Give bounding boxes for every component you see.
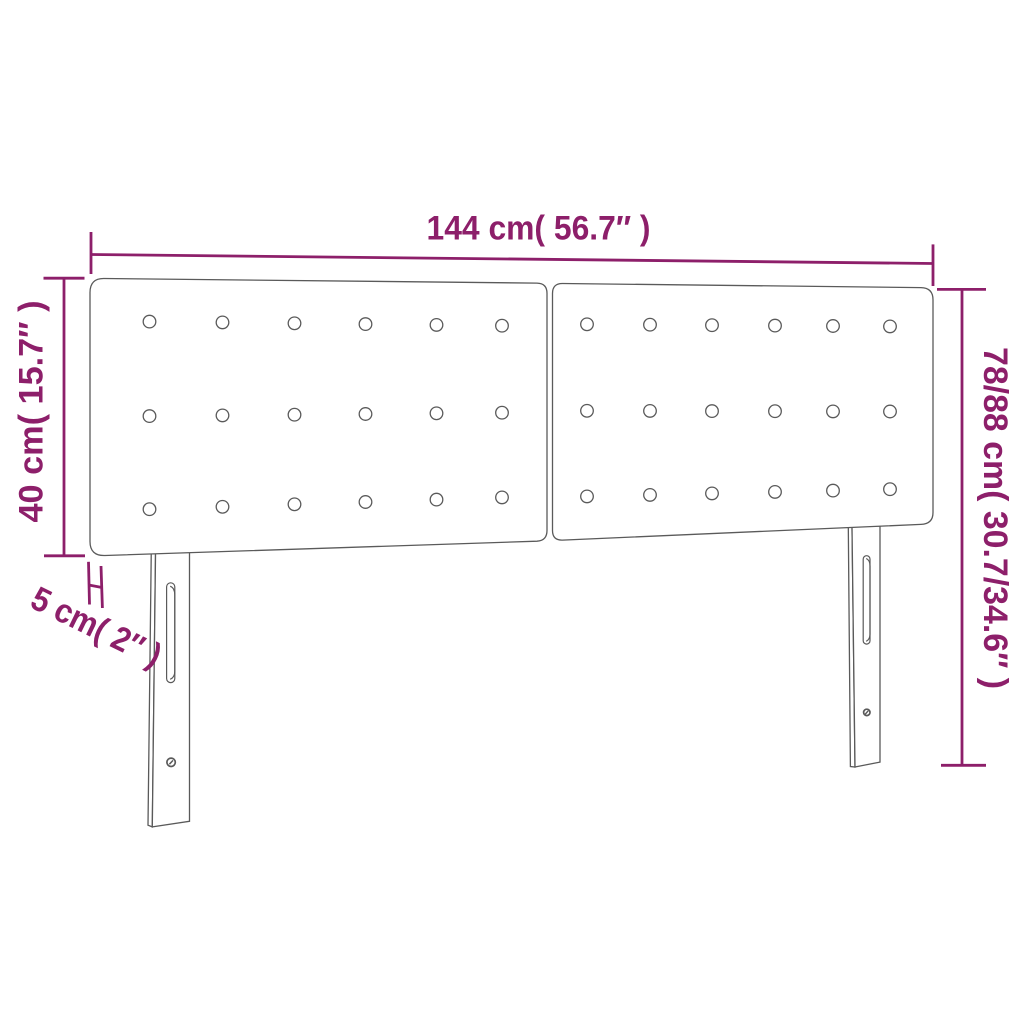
svg-text:78/88 cm( 30.7/34.6″ ): 78/88 cm( 30.7/34.6″ ) (976, 347, 1014, 689)
svg-text:144 cm( 56.7″ ): 144 cm( 56.7″ ) (427, 210, 651, 248)
svg-text:40 cm( 15.7″ ): 40 cm( 15.7″ ) (13, 301, 51, 523)
